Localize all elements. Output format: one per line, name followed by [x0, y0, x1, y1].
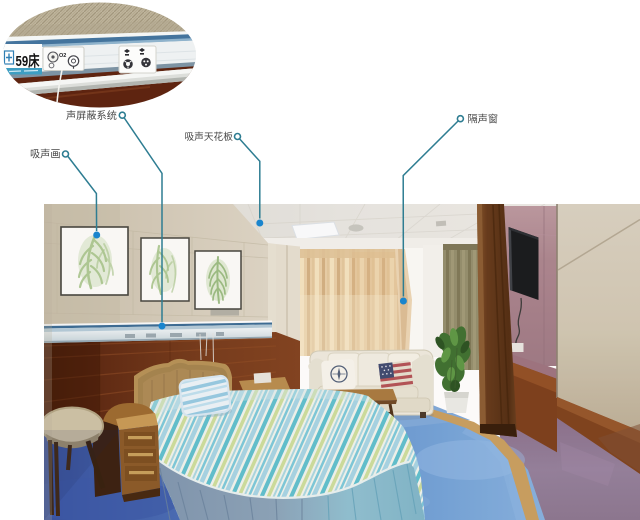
- svg-text:59床: 59床: [16, 52, 41, 70]
- svg-text:隔声窗: 隔声窗: [468, 113, 499, 126]
- svg-text:吸声天花板: 吸声天花板: [185, 130, 234, 143]
- svg-text:O2: O2: [59, 53, 66, 59]
- svg-text:吸声画: 吸声画: [30, 148, 61, 161]
- svg-text:声屏蔽系统: 声屏蔽系统: [66, 109, 117, 122]
